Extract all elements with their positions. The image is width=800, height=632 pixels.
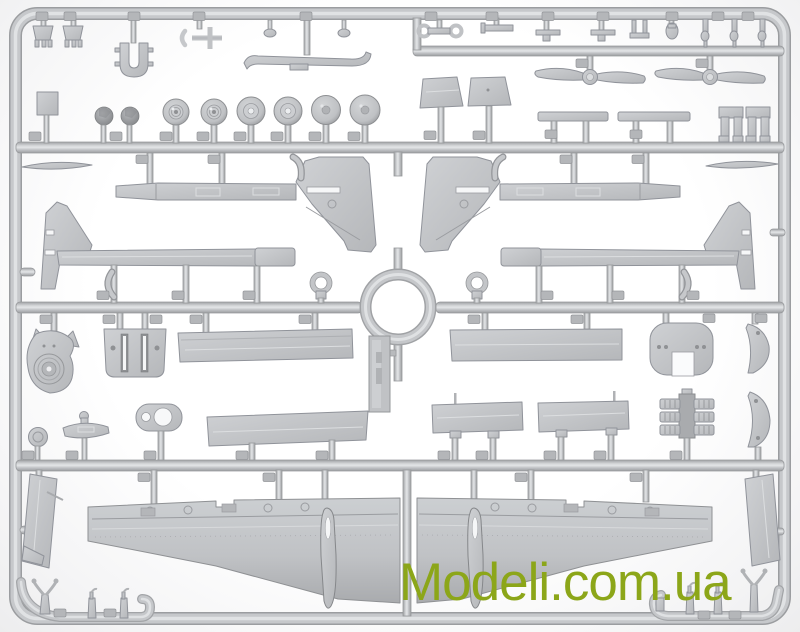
tail-boom-top-right xyxy=(420,153,680,252)
elevator-blade-left xyxy=(22,162,92,169)
bent-tip-post xyxy=(120,589,129,618)
teardrop-pod-left xyxy=(321,508,336,608)
spectacle-plate-part xyxy=(136,404,182,460)
small-fitting-parts xyxy=(419,18,767,47)
elevator-blade-right xyxy=(706,161,778,168)
runner-top-right xyxy=(413,46,784,56)
subframe-bottom-left xyxy=(21,579,150,619)
tail-boom-bottom-left xyxy=(41,202,295,303)
propeller-right xyxy=(655,56,765,85)
tail-boom-top-left xyxy=(116,153,376,252)
exhaust-skid-part xyxy=(244,20,371,70)
door-panel-right xyxy=(745,470,780,566)
tail-boom-bottom-right xyxy=(501,202,755,303)
center-ring xyxy=(366,275,431,340)
sprue-drawing xyxy=(0,0,800,632)
outer-wing-panel-left xyxy=(88,470,400,603)
runner-3-right xyxy=(436,302,784,313)
propeller-left xyxy=(535,56,645,85)
runner-2 xyxy=(16,142,784,153)
landing-gear-fork-parts xyxy=(719,107,770,142)
runner-vertical-center-c xyxy=(394,343,402,381)
frame-stub-right-a xyxy=(770,229,785,236)
flap-panel-right xyxy=(538,391,629,460)
towing-ring-right xyxy=(466,272,488,303)
tag-embossed-logo xyxy=(376,352,382,363)
pitot-fork-part xyxy=(182,20,222,49)
door-panel-left xyxy=(22,470,63,568)
bent-tip-post xyxy=(88,589,97,618)
fuselage-panel-b xyxy=(207,411,368,460)
runner-vertical-center-a xyxy=(394,152,402,176)
runner-4 xyxy=(16,460,784,471)
frame-stub-left-a xyxy=(20,268,35,276)
u-clamp-part xyxy=(115,20,153,77)
fuselage-panel-a xyxy=(178,313,353,362)
flap-panel-left xyxy=(432,393,523,460)
antenna-mount-parts xyxy=(33,20,83,47)
engine-cowling-face-part xyxy=(27,313,79,393)
runner-3-left xyxy=(16,302,362,313)
radial-engine-block-part xyxy=(660,389,714,460)
wing-strip-parts xyxy=(538,112,690,143)
towing-ring-left xyxy=(310,272,332,303)
watermark: Modeli.com.ua xyxy=(399,556,799,609)
sprue-photo: Modeli.com.ua xyxy=(0,0,800,632)
root-fairing-lower xyxy=(748,392,770,460)
tag-embossed-code xyxy=(376,368,382,384)
sprue-id-tag xyxy=(369,336,396,412)
